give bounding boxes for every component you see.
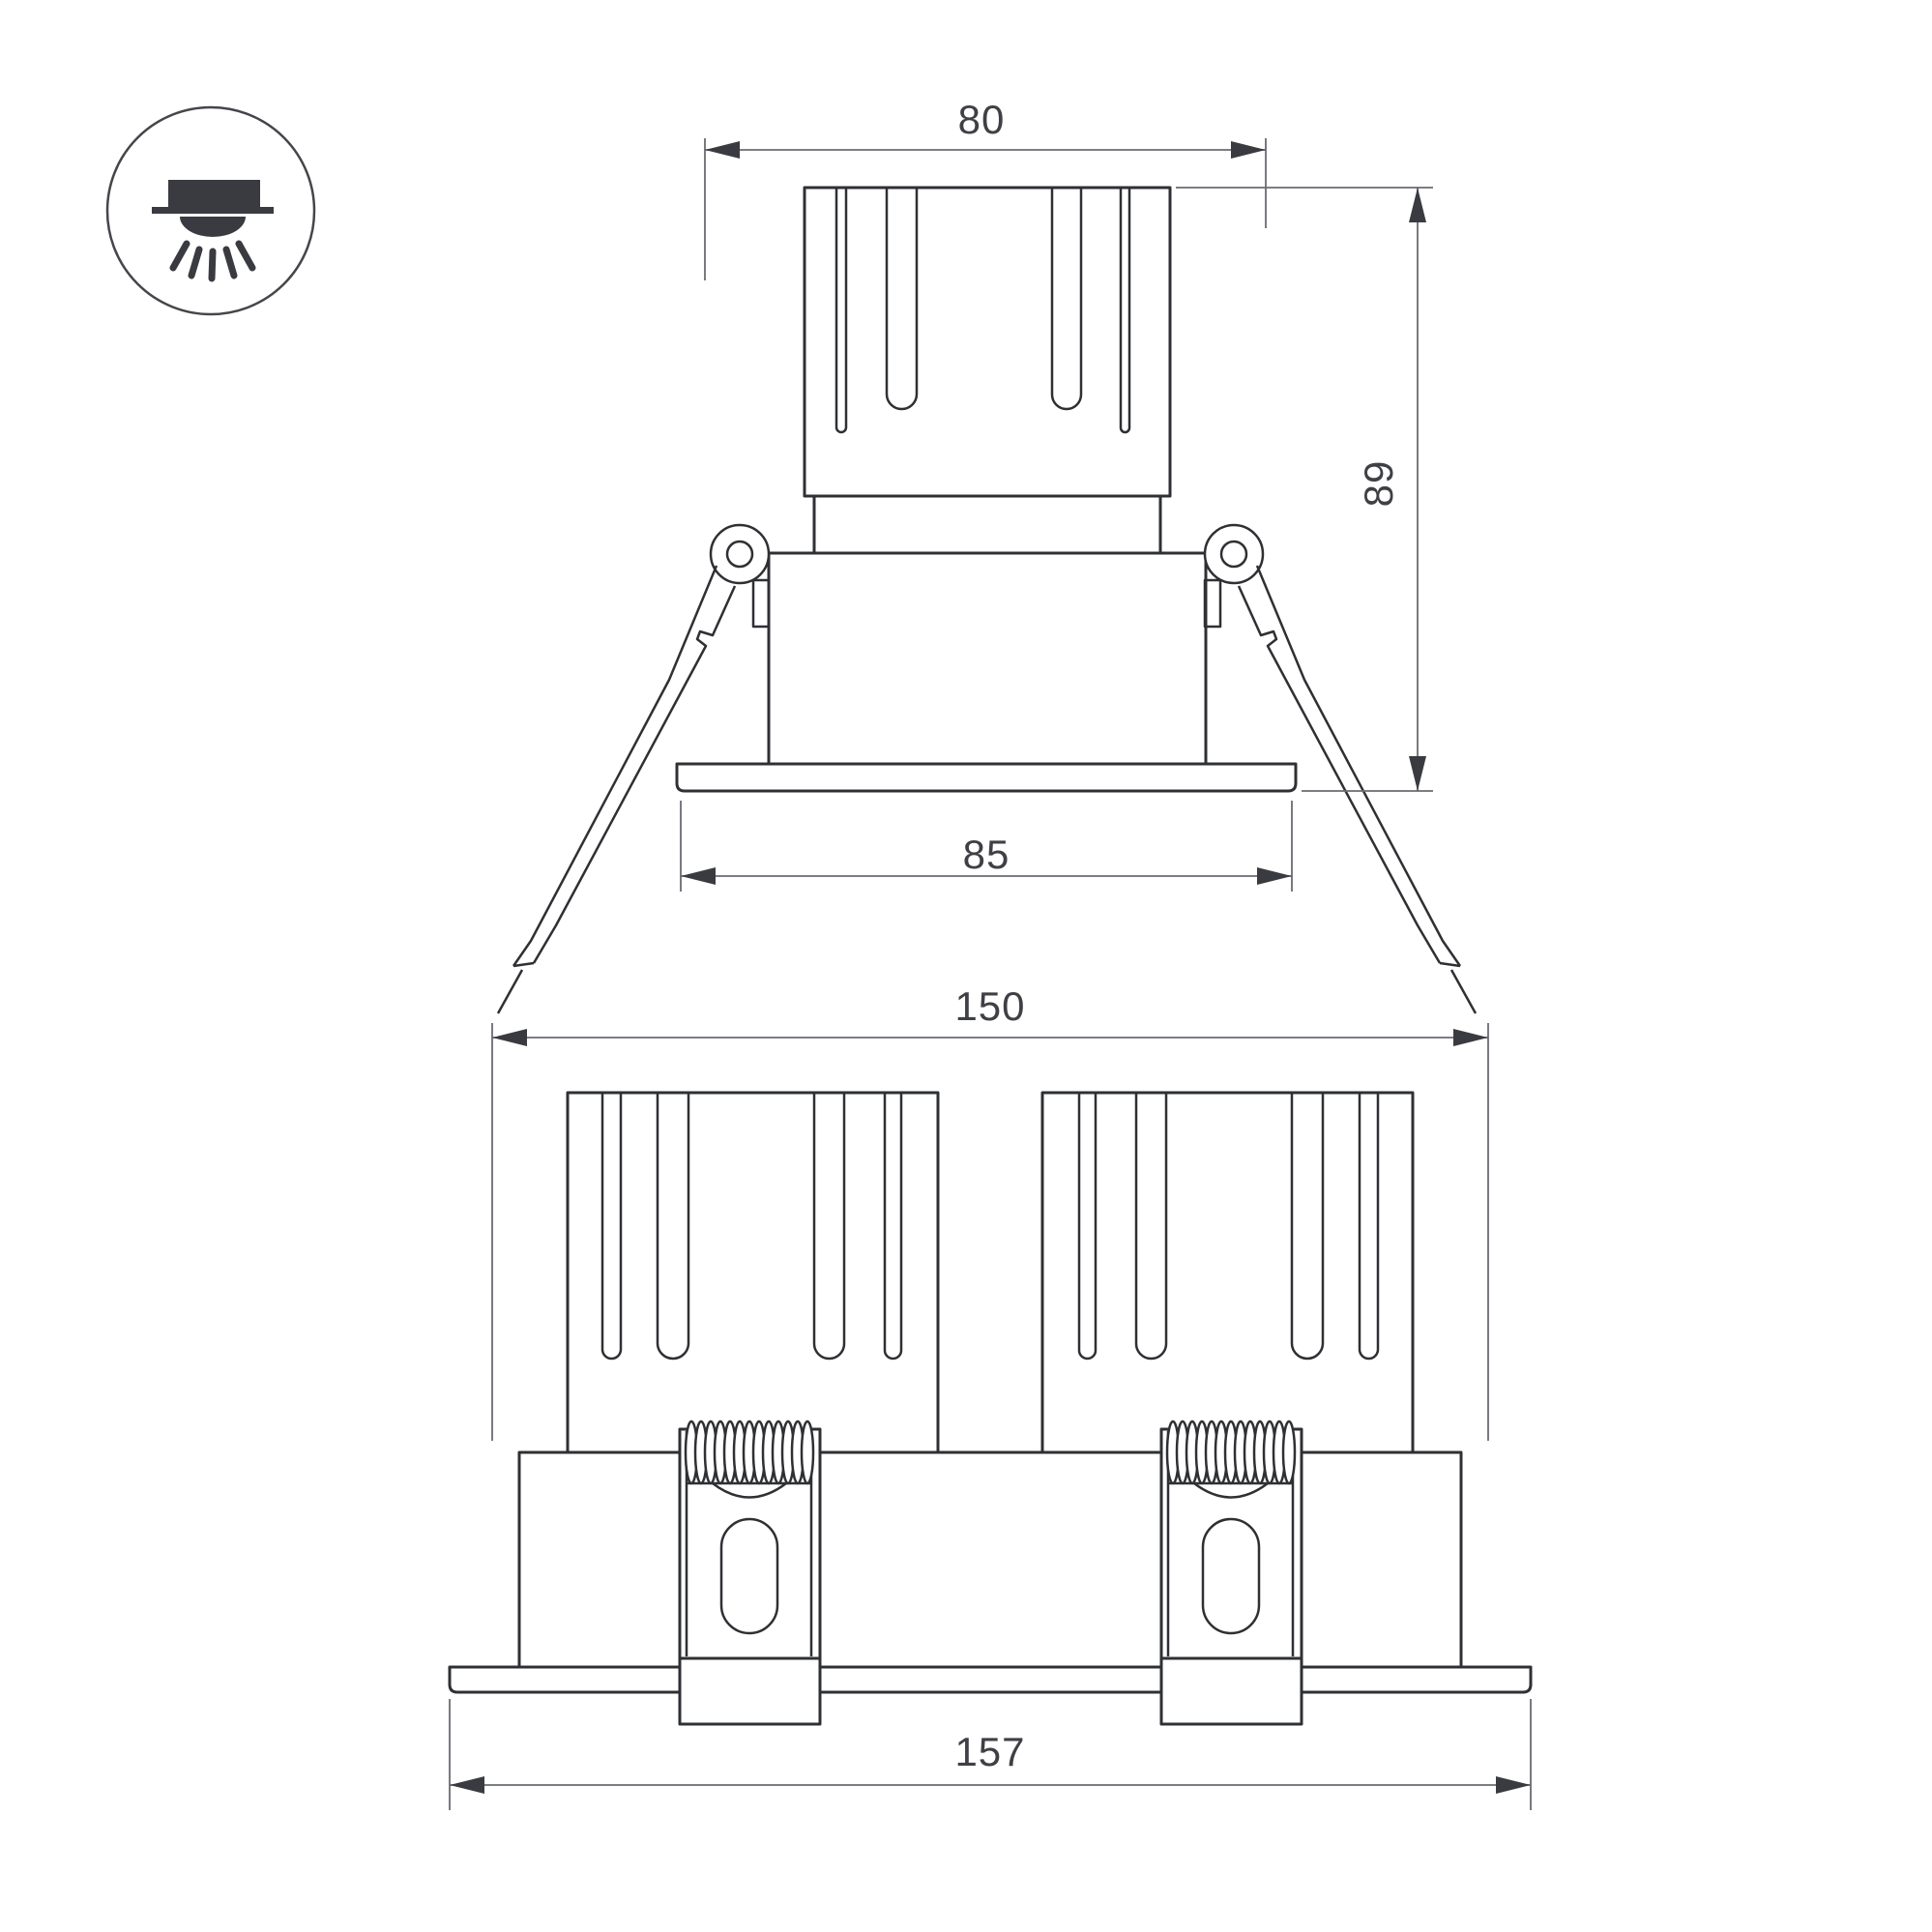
heatsink-body: [805, 188, 1170, 496]
bracket-foot: [1161, 1658, 1302, 1724]
dim-label-flange-width: 85: [963, 832, 1010, 877]
clip-needle: [498, 970, 522, 1013]
technical-drawing-canvas: 80 89 85 150: [0, 0, 1932, 1932]
dimension-157: 157: [450, 1699, 1531, 1810]
heatsink-left: [568, 1093, 938, 1452]
heatsink-left-fin-slots: [602, 1093, 901, 1359]
left-spring-clip: [498, 525, 769, 1013]
dim-label-height: 89: [1356, 460, 1401, 508]
recessed-downlight-icon: [107, 107, 314, 314]
clip-pivot-head: [711, 525, 769, 583]
single-luminaire-front-view: 80 89 85: [498, 97, 1476, 1013]
double-luminaire-front-view: 150: [450, 983, 1531, 1810]
dimension-150: 150: [492, 983, 1488, 1441]
bracket-spring-coil: [1167, 1421, 1295, 1483]
heatsink-neck: [814, 496, 1160, 553]
icon-lens-dome: [180, 217, 246, 237]
trim-body: [769, 553, 1206, 764]
bracket-spring-coil: [686, 1421, 813, 1483]
icon-light-rays: [173, 244, 252, 278]
right-spring-clip: [1205, 525, 1476, 1013]
trim-body-double: [519, 1452, 1461, 1667]
heatsink-fin-slots: [836, 188, 1129, 432]
dimension-drawing-sheet: 80 89 85 150: [0, 0, 1932, 1932]
clip-tab: [753, 580, 769, 627]
dim-label-top-width: 80: [958, 97, 1006, 142]
flange: [677, 764, 1296, 791]
icon-ceiling-flange: [152, 207, 274, 214]
heatsink-right: [1042, 1093, 1413, 1452]
clip-pivot-head: [1205, 525, 1263, 583]
right-mounting-bracket: [1161, 1421, 1302, 1724]
left-mounting-bracket: [680, 1421, 820, 1724]
heatsink-right-fin-slots: [1079, 1093, 1378, 1359]
clip-needle: [1451, 970, 1476, 1013]
dimension-89: 89: [1176, 188, 1433, 791]
dimension-85: 85: [681, 801, 1292, 892]
bracket-foot: [680, 1658, 820, 1724]
icon-lamp-body: [168, 180, 260, 208]
flange-double: [450, 1667, 1531, 1692]
dim-label-cutout-width: 150: [954, 983, 1025, 1029]
dim-label-flange-width-double: 157: [954, 1729, 1025, 1774]
